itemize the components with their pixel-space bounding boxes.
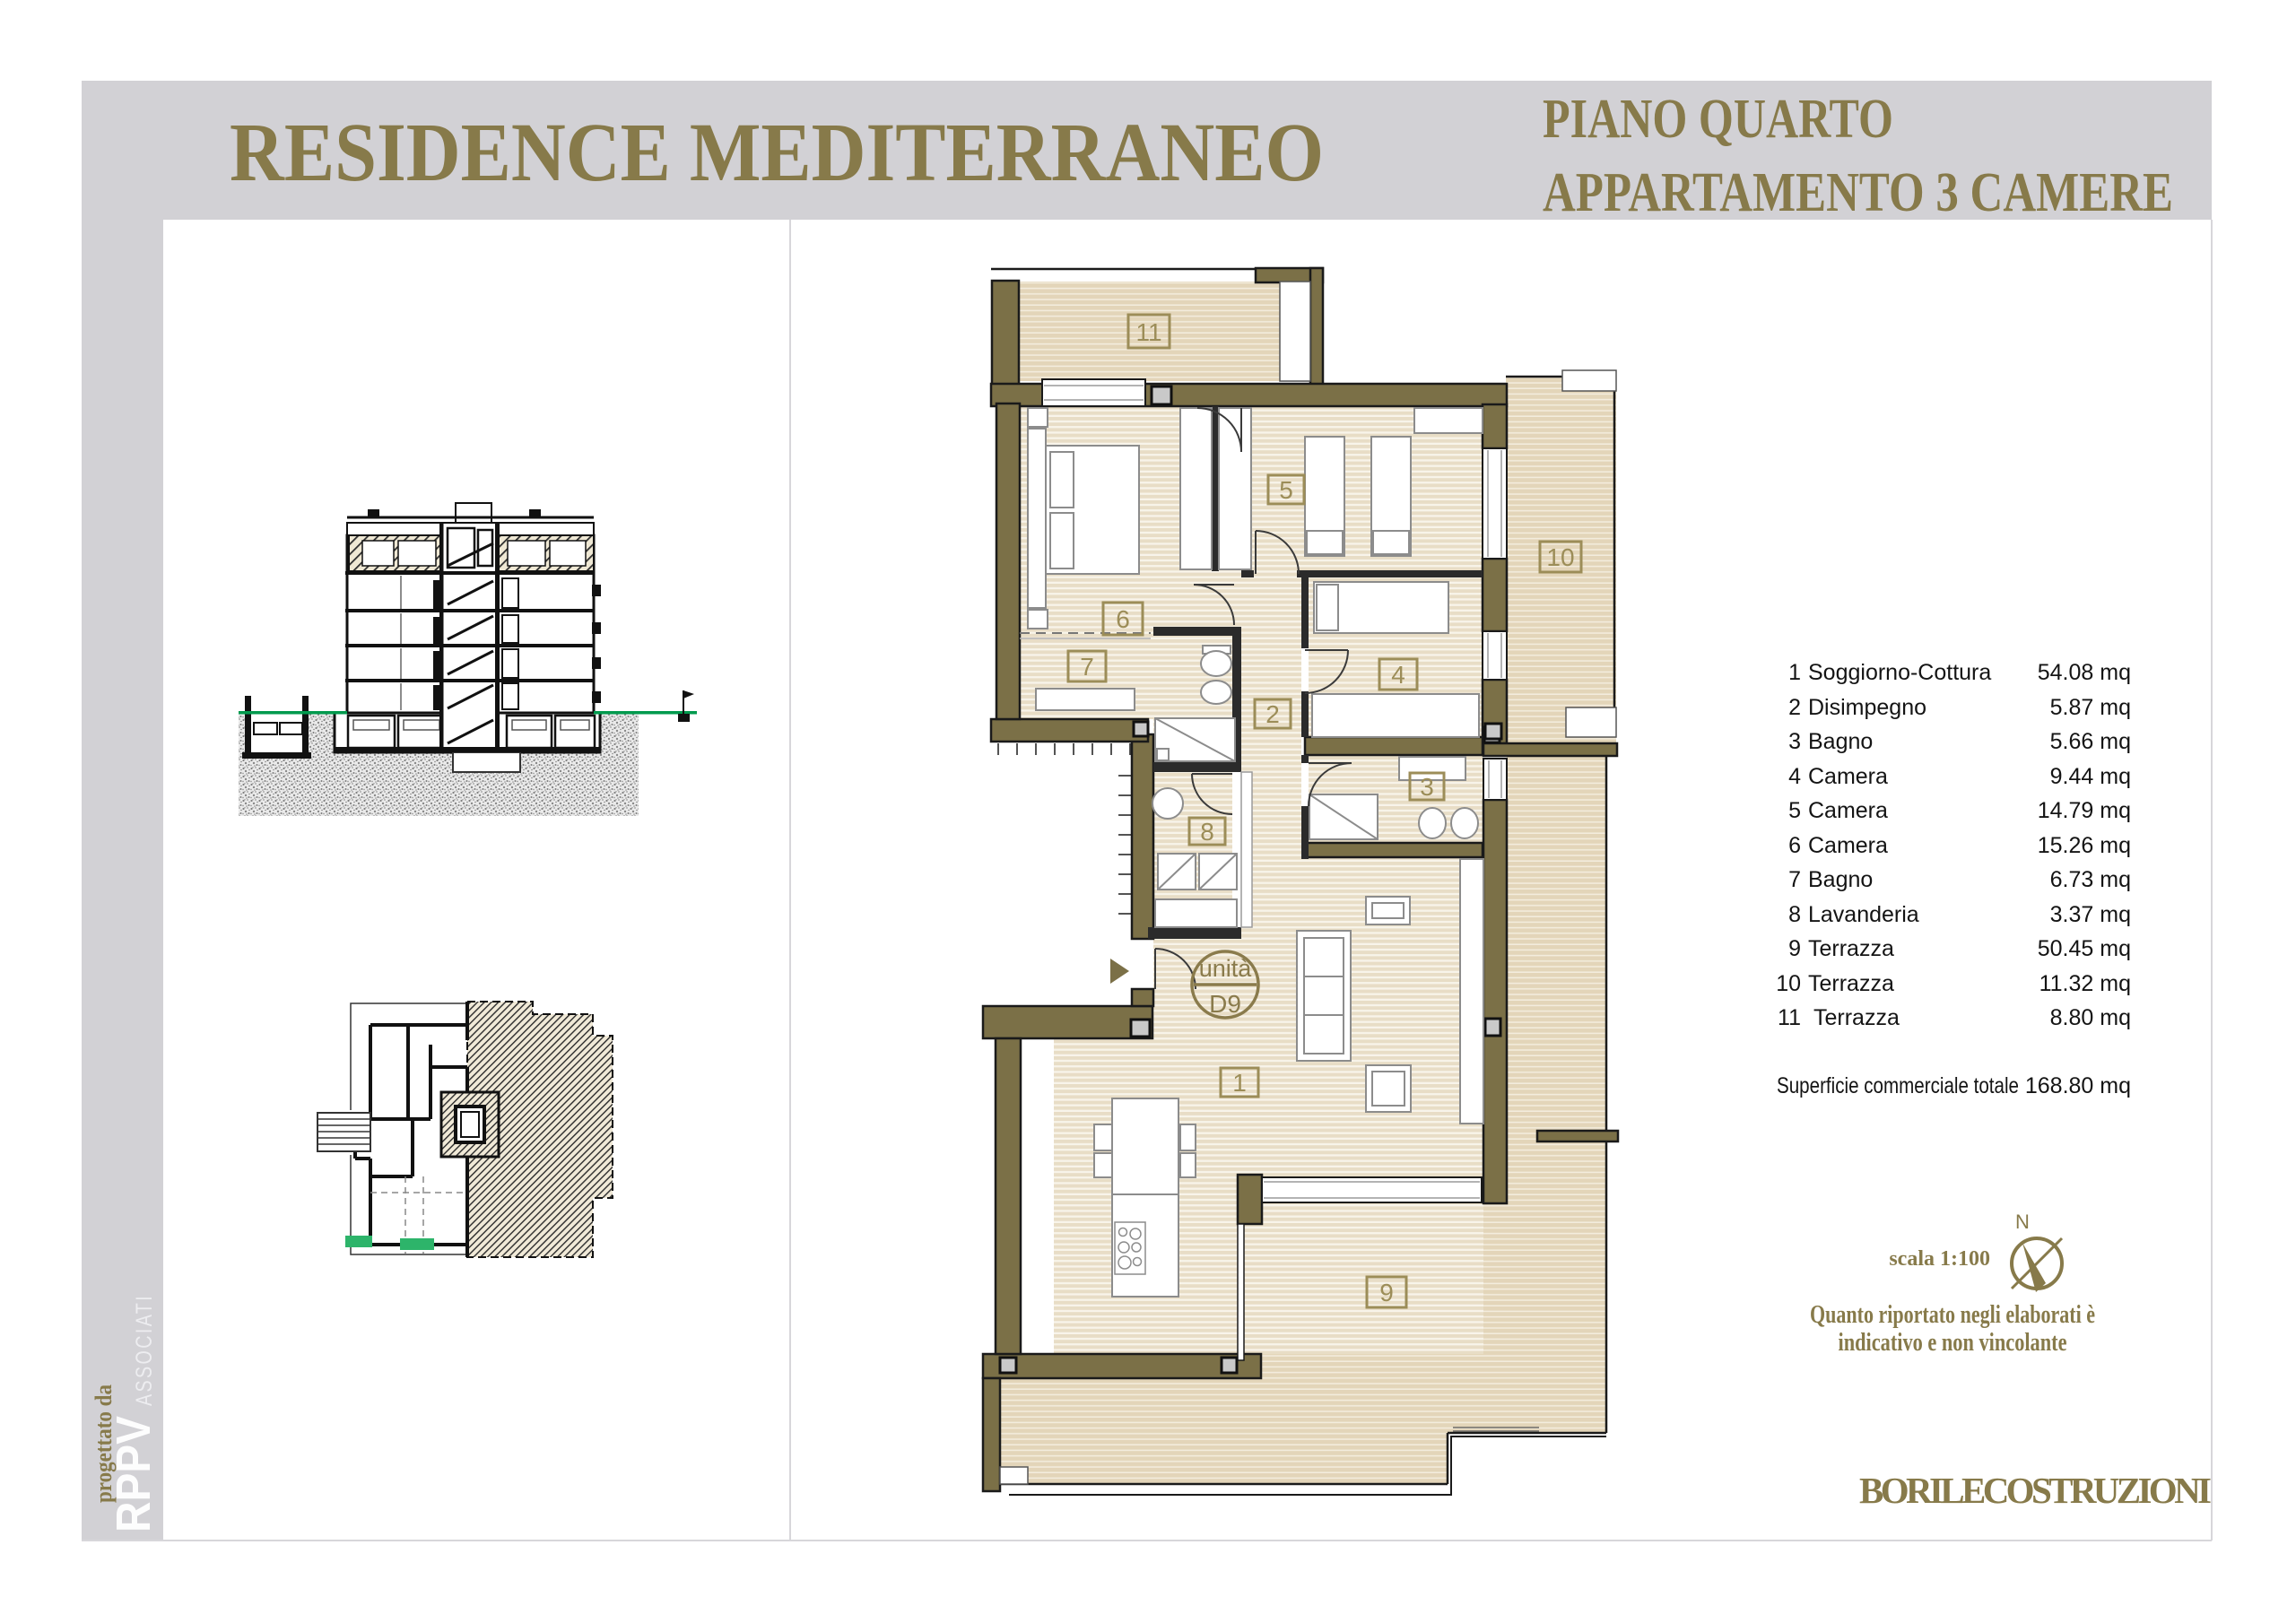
svg-text:1: 1 bbox=[1788, 660, 1801, 685]
svg-text:Terrazza: Terrazza bbox=[1813, 1005, 1900, 1030]
svg-text:6: 6 bbox=[1116, 605, 1130, 633]
svg-text:6: 6 bbox=[1788, 833, 1801, 858]
svg-text:14.79 mq: 14.79 mq bbox=[2038, 798, 2131, 823]
svg-text:Camera: Camera bbox=[1808, 833, 1888, 858]
svg-text:Bagno: Bagno bbox=[1808, 867, 1873, 892]
svg-text:54.08 mq: 54.08 mq bbox=[2038, 660, 2131, 685]
svg-text:1: 1 bbox=[1232, 1069, 1247, 1097]
svg-text:2: 2 bbox=[1788, 695, 1801, 720]
svg-text:9.44 mq: 9.44 mq bbox=[2050, 764, 2131, 789]
svg-text:5.66 mq: 5.66 mq bbox=[2050, 729, 2131, 754]
svg-text:8: 8 bbox=[1200, 818, 1214, 846]
svg-text:8: 8 bbox=[1788, 902, 1801, 927]
svg-text:D9: D9 bbox=[1209, 990, 1241, 1018]
svg-text:9: 9 bbox=[1788, 936, 1801, 961]
svg-text:ASSOCIATI: ASSOCIATI bbox=[132, 1294, 157, 1406]
svg-text:unità: unità bbox=[1199, 955, 1253, 982]
svg-text:3.37 mq: 3.37 mq bbox=[2050, 902, 2131, 927]
svg-text:Terrazza: Terrazza bbox=[1808, 971, 1894, 996]
svg-text:Bagno: Bagno bbox=[1808, 729, 1873, 754]
svg-text:Terrazza: Terrazza bbox=[1808, 936, 1894, 961]
svg-text:5: 5 bbox=[1788, 798, 1801, 823]
svg-text:indicativo e non vincolante: indicativo e non vincolante bbox=[1839, 1328, 2067, 1357]
svg-text:50.45 mq: 50.45 mq bbox=[2038, 936, 2131, 961]
svg-text:5: 5 bbox=[1279, 476, 1293, 504]
svg-text:PIANO QUARTO: PIANO QUARTO bbox=[1543, 89, 1893, 150]
svg-text:Superficie commerciale totale: Superficie commerciale totale bbox=[1777, 1073, 2019, 1098]
svg-text:4: 4 bbox=[1391, 661, 1405, 689]
svg-text:7: 7 bbox=[1080, 653, 1094, 681]
svg-text:11.32 mq: 11.32 mq bbox=[2039, 971, 2131, 996]
svg-text:11: 11 bbox=[1778, 1005, 1801, 1030]
svg-text:168.80 mq: 168.80 mq bbox=[2025, 1073, 2131, 1098]
svg-text:Disimpegno: Disimpegno bbox=[1808, 695, 1926, 720]
svg-text:Lavanderia: Lavanderia bbox=[1808, 902, 1919, 927]
svg-text:15.26 mq: 15.26 mq bbox=[2038, 833, 2131, 858]
svg-text:7: 7 bbox=[1788, 867, 1801, 892]
svg-text:BORILECOSTRUZIONI: BORILECOSTRUZIONI bbox=[1859, 1470, 2212, 1511]
svg-text:APPARTAMENTO 3 CAMERE: APPARTAMENTO 3 CAMERE bbox=[1543, 162, 2173, 223]
svg-text:RPPV: RPPV bbox=[107, 1416, 161, 1532]
svg-text:4: 4 bbox=[1788, 764, 1801, 789]
svg-text:Camera: Camera bbox=[1808, 764, 1888, 789]
svg-text:3: 3 bbox=[1420, 773, 1434, 801]
svg-text:8.80 mq: 8.80 mq bbox=[2050, 1005, 2131, 1030]
svg-text:scala 1:100: scala 1:100 bbox=[1889, 1247, 1990, 1271]
svg-text:Soggiorno-Cottura: Soggiorno-Cottura bbox=[1808, 660, 1991, 685]
svg-text:6.73 mq: 6.73 mq bbox=[2050, 867, 2131, 892]
svg-text:10: 10 bbox=[1776, 971, 1801, 996]
svg-text:Quanto riportato negli elabora: Quanto riportato negli elaborati è bbox=[1810, 1300, 2095, 1329]
svg-text:3: 3 bbox=[1788, 729, 1801, 754]
svg-text:10: 10 bbox=[1546, 543, 1574, 571]
svg-text:9: 9 bbox=[1379, 1279, 1394, 1306]
svg-text:RESIDENCE MEDITERRANEO: RESIDENCE MEDITERRANEO bbox=[230, 107, 1324, 199]
svg-text:11: 11 bbox=[1135, 318, 1161, 346]
svg-text:Camera: Camera bbox=[1808, 798, 1888, 823]
svg-text:2: 2 bbox=[1265, 700, 1280, 728]
svg-text:5.87 mq: 5.87 mq bbox=[2050, 695, 2131, 720]
svg-text:N: N bbox=[2015, 1211, 2030, 1233]
